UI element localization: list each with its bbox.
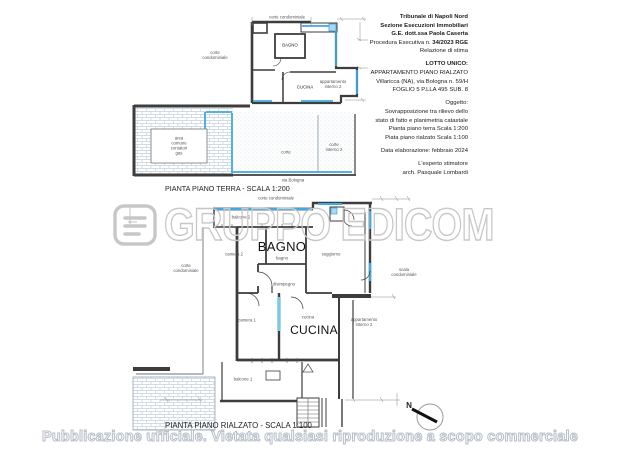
label-corte-condominiale-left-2: cortecondominiale: [173, 263, 198, 273]
label-soggiorno: soggiorno: [322, 251, 341, 256]
label-cucina-small: cucina: [302, 314, 314, 319]
expert-line1: L'esperto stimatore: [370, 160, 468, 169]
label-disimpegno: disimpegno: [273, 281, 295, 286]
object-line3: Pianta piano terra Scala 1:200: [370, 125, 468, 134]
label-bagno-big: BAGNO: [258, 239, 306, 255]
court-name: Tribunale di Napoli Nord: [370, 13, 468, 22]
label-corte-condominiale-top-2: corte condominiale: [258, 195, 294, 200]
date-line: Data elaborazione: febbraio 2024: [370, 147, 468, 156]
label-bagno-small: bagno: [276, 255, 288, 260]
lot-line1: APPARTAMENTO PIANO RIALZATO: [370, 69, 468, 78]
lot-line2: Villaricca (NA), via Bologna n. 59/H: [370, 78, 468, 87]
object-line4: Piata piano rialzato Scala 1:100: [370, 134, 468, 143]
judge: G.E. dott.ssa Paola Caserta: [370, 30, 468, 39]
label-cucina-big: CUCINA: [290, 323, 338, 337]
plan-rialzato-drawing: [128, 196, 410, 430]
label-area-comune: areacomunecontatorigas: [171, 136, 187, 157]
procedure-line: Procedura Esecutiva n. 34/2023 RGE: [370, 39, 468, 48]
label-corte-condominiale-left: cortecondominiale: [202, 50, 227, 60]
compass-north-label: N: [406, 401, 412, 411]
official-publication-banner: Pubblicazione ufficiale. Vietata qualsia…: [0, 429, 620, 445]
label-corte-condominiale-top: corte condominiale: [269, 14, 305, 19]
floor-plan-drawing: [0, 0, 620, 450]
object-title: Oggetto:: [370, 99, 468, 108]
report-type: Relazione di stima: [370, 47, 468, 56]
label-camera2: camera 2: [225, 251, 243, 256]
label-balcone1: balcone 1: [234, 376, 253, 381]
label-cucina-terra: CUCINA: [297, 84, 313, 89]
object-line1: Sovrapposizione tra rilievo dello: [370, 108, 468, 117]
lot-title: LOTTO UNICO:: [370, 60, 468, 69]
label-bagno-terra: BAGNO: [282, 42, 298, 47]
label-via-bologna: via Bologna: [282, 177, 304, 182]
caption-piano-terra: PIANTA PIANO TERRA - SCALA 1:200: [165, 184, 290, 193]
lot-line3: FOGLIO 5 P.LLA 495 SUB. 8: [370, 86, 468, 95]
expert-line2: arch. Pasquale Lombardi: [370, 169, 468, 178]
object-line2: stato di fatto e planimetria catastale: [370, 117, 468, 126]
label-corte-interno: corteinterno 2: [326, 142, 343, 152]
court-section: Sezione Esecuzioni Immobiliari: [370, 22, 468, 31]
label-appartamento-terra: appartamentointerno 2: [320, 79, 347, 89]
label-balcone2: balcone 2: [232, 214, 251, 219]
label-camera1: camera 1: [238, 317, 256, 322]
title-block: Tribunale di Napoli Nord Sezione Esecuzi…: [370, 13, 468, 177]
compass-icon: [412, 404, 443, 430]
label-appartamento-rialzato: appartamentointerno 2: [351, 317, 378, 327]
label-corte: corte: [281, 149, 291, 154]
label-scala-condominiale: scalacondominiale: [391, 267, 416, 277]
edicom-logo-icon: [112, 203, 160, 249]
document-page: Tribunale di Napoli Nord Sezione Esecuzi…: [0, 0, 620, 450]
